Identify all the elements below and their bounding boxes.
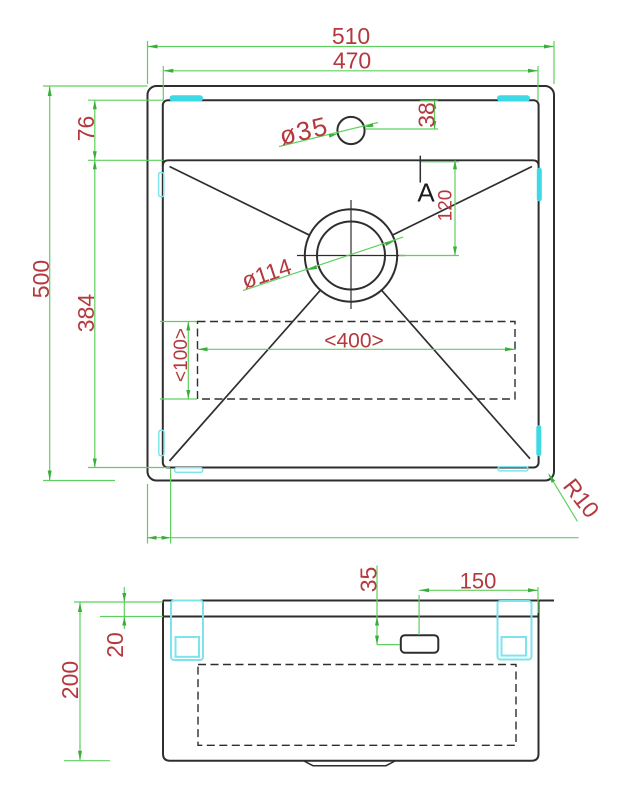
svg-text:35: 35 — [356, 567, 382, 593]
svg-text:76: 76 — [73, 116, 99, 142]
svg-text:150: 150 — [460, 569, 497, 594]
svg-text:200: 200 — [57, 661, 83, 699]
svg-text:20: 20 — [102, 632, 128, 658]
svg-text:470: 470 — [333, 47, 371, 73]
svg-text:<100>: <100> — [171, 328, 192, 382]
svg-text:A: A — [417, 178, 435, 208]
svg-text:38: 38 — [414, 102, 440, 128]
svg-text:ø114: ø114 — [238, 253, 295, 294]
svg-text:<400>: <400> — [324, 330, 384, 353]
svg-text:384: 384 — [73, 294, 99, 333]
svg-text:ø35: ø35 — [276, 110, 331, 151]
svg-text:120: 120 — [436, 190, 457, 222]
svg-text:R10: R10 — [558, 473, 604, 522]
svg-text:500: 500 — [28, 260, 54, 298]
svg-text:510: 510 — [332, 23, 370, 49]
